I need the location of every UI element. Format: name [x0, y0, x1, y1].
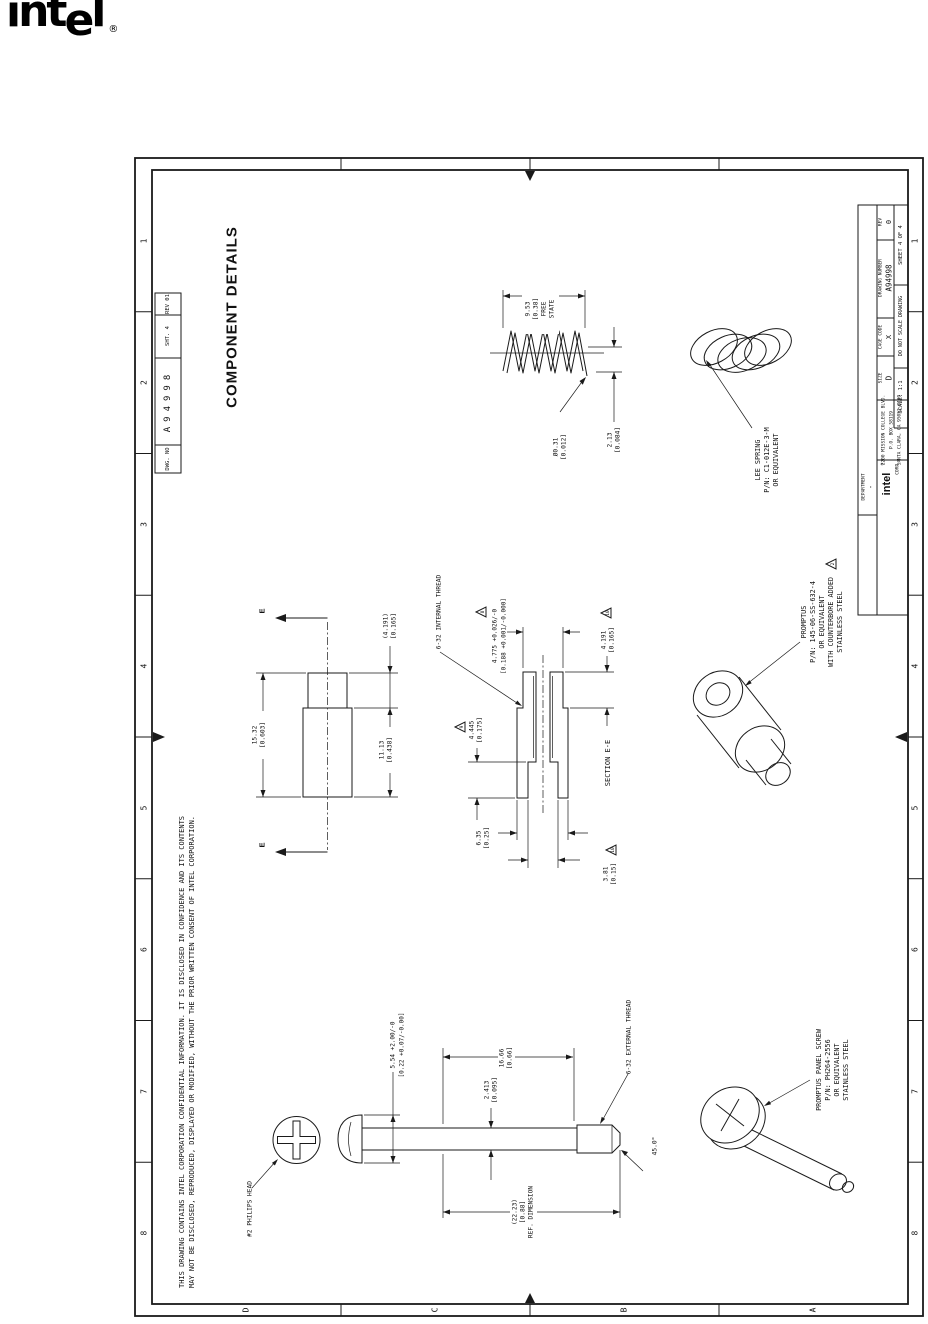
screw-callout-line1: PROMPTUS PANEL SCREW [815, 1028, 823, 1111]
flag-note-boss-len: 10 [601, 608, 611, 618]
spring-callout-line1: LEE SPRING [754, 440, 762, 481]
screw-thread-len-in: [0.66] [507, 1047, 514, 1069]
screw-head-view: #2 PHILIPS HEAD [247, 1117, 321, 1237]
confidentiality-line-1: THIS DRAWING CONTAINS INTEL CORPORATION … [178, 816, 186, 1288]
zone-number-left-8: 8 [140, 1231, 149, 1236]
spring-free-length-in: [0.38] [533, 298, 540, 320]
flag-note-press-dia-number: 8 [480, 610, 486, 613]
standoff-cbore-dia-mm: 3.81 [603, 866, 610, 881]
zone-number-right-1: 1 [911, 238, 920, 243]
spring-free-length-mm: 9.53 [525, 301, 532, 316]
standoff-boss-len-in: [0.165] [609, 627, 616, 653]
section-cut-label-top: E [258, 608, 267, 613]
flag-note-cbore-depth: 9 [455, 722, 465, 732]
zone-number-left-3: 3 [140, 522, 149, 527]
zone-number-right-5: 5 [911, 805, 920, 810]
tb-cage-label: CAGE CODE [878, 325, 884, 350]
spring-callout-line3: OR EQUIVALENT [772, 433, 780, 486]
standoff-body-in: [0.438] [387, 737, 394, 763]
standoff-internal-thread-callout: 6-32 INTERNAL THREAD [436, 574, 443, 649]
section-label: SECTION E-E [604, 740, 612, 786]
tb-sheet: SHEET 4 OF 4 [898, 224, 904, 264]
screw-overall-ref: REF. DIMENSION [528, 1186, 535, 1238]
zone-letter-c: C [431, 1307, 440, 1312]
tb-rev-value: 0 [885, 220, 893, 224]
flag-note-cbore-dia-number: 10 [610, 847, 616, 853]
tb-no-scale: DO NOT SCALE DRAWING [898, 296, 904, 356]
zone-number-left-6: 6 [140, 947, 149, 952]
title-block: SHEET 4 OF 4 DO NOT SCALE DRAWING SCALE:… [858, 205, 908, 615]
tb-company: CORP. [895, 461, 901, 475]
flag-note-press-dia: 8 [476, 607, 486, 617]
section-cut-label-bottom: E [258, 842, 267, 847]
tb-rev-label: REV [878, 218, 884, 226]
zone-labels: 1 2 3 4 5 6 7 8 1 2 3 4 5 6 7 8 D C B A [140, 238, 920, 1312]
flag-note-callout: 2 [826, 559, 836, 569]
standoff-callout-line3: OR EQUIVALENT [818, 595, 826, 648]
zone-number-right-8: 8 [911, 1231, 920, 1236]
header-rev: REV 01 [165, 294, 171, 314]
zone-number-left-4: 4 [140, 664, 149, 669]
standoff-press-dia-mm: 4.775 +0.026/-0 [492, 609, 499, 664]
spring-isometric-view: LEE SPRING P/N: C1-012E-3-M OR EQUIVALEN… [684, 321, 797, 493]
screw-shank-dia-in: [0.095] [492, 1077, 499, 1103]
standoff-body-dia-in: [0.25] [484, 827, 491, 849]
standoff-body-dia-mm: 6.35 [476, 830, 483, 845]
screw-side-view: 5.54 +2.00/-0 [0.22 +0.07/-0.00] 2.413 [… [338, 999, 659, 1241]
standoff-body-mm: 11.13 [379, 740, 386, 759]
spring-wire-dia-mm: Ø0.31 [552, 437, 560, 456]
spring-free-state-2: STATE [549, 299, 556, 318]
header-dwg-no: A94998 [163, 370, 173, 433]
tb-address-line3: SANTA CLARA, CA 95052-8119 [897, 394, 903, 465]
standoff-boss-ref-in: [0.165] [391, 613, 398, 639]
phillips-cross-icon [278, 1121, 316, 1159]
zone-number-left-5: 5 [140, 805, 149, 810]
header-strip: REV 01 SHT. 4 A94998 DWG. NO [155, 293, 181, 473]
screw-chamfer-angle: 45.0° [651, 1137, 659, 1156]
spring-pitch-mm: 2.13 [607, 432, 614, 447]
screw-ext-thread-callout: 6-32 EXTERNAL THREAD [626, 999, 633, 1074]
zone-number-right-2: 2 [911, 380, 920, 385]
screw-head-height-in: [0.22 +0.07/-0.00] [399, 1012, 406, 1077]
standoff-boss-len-mm: 4.191 [601, 630, 608, 649]
zone-number-right-4: 4 [911, 664, 920, 669]
tb-department-value: - [867, 485, 875, 489]
screw-overall-mm: (22.23) [512, 1199, 519, 1225]
screw-head-height-mm: 5.54 +2.00/-0 [390, 1021, 397, 1068]
standoff-callout-line2: P/N: 145-06-SS-632-4 [809, 581, 817, 663]
drawing-sheet: 1 2 3 4 5 6 7 8 1 2 3 4 5 6 7 8 D C B A [0, 0, 928, 1324]
drawing-page: intel® [0, 0, 928, 1324]
header-sheet: SHT. 4 [165, 325, 171, 346]
tb-cage-value: X [885, 334, 893, 339]
flag-note-cbore-dia: 10 [606, 845, 616, 855]
standoff-section-view: 6-32 INTERNAL THREAD 8 4.775 +0.026/-0 [… [436, 574, 618, 885]
zone-number-left-7: 7 [140, 1089, 149, 1094]
screw-head-callout: #2 PHILIPS HEAD [247, 1181, 254, 1237]
zone-letter-a: A [809, 1307, 818, 1312]
tb-intel-logo: intel [881, 473, 893, 496]
standoff-overall-mm: 15.32 [252, 725, 259, 744]
zone-number-right-3: 3 [911, 522, 920, 527]
standoff-callout-line1: PROMPTUS [800, 606, 808, 639]
standoff-overall-in: [0.603] [260, 722, 267, 748]
tb-dwg-label: DRAWING NUMBER [878, 259, 884, 297]
tb-department-label: DEPARTMENT [861, 473, 867, 500]
page-title: COMPONENT DETAILS [224, 226, 241, 408]
tb-address-line2: P.O. BOX 58119 [889, 411, 895, 449]
header-dwg-no-label: DWG. NO [165, 447, 171, 470]
zone-letter-b: B [620, 1307, 629, 1312]
confidentiality-line-2: MAY NOT BE DISCLOSED, REPRODUCED, DISPLA… [188, 816, 196, 1288]
tb-size-value: D [885, 375, 894, 380]
flag-note-cbore-depth-number: 9 [459, 725, 465, 728]
screw-overall-in: [0.88] [520, 1201, 527, 1223]
tb-size-label: SIZE [878, 372, 884, 383]
standoff-callout-line5: STAINLESS STEEL [836, 591, 844, 652]
screw-shank-dia-mm: 2.413 [484, 1080, 491, 1099]
spring-free-state-1: FREE [541, 301, 548, 316]
standoff-press-dia-in: [0.188 +0.001/-0.000] [501, 598, 508, 674]
screw-callout-line4: STAINLESS STEEL [842, 1039, 850, 1100]
screw-callout-line2: P/N: PH264-2556 [824, 1039, 832, 1100]
tb-address-line1: 2200 MISSION COLLEGE BLVD. [881, 395, 887, 465]
standoff-boss-ref-mm: (4.191) [383, 613, 390, 639]
screw-thread-len-mm: 16.66 [499, 1048, 506, 1067]
zone-number-left-1: 1 [140, 238, 149, 243]
screw-callout-line3: OR EQUIVALENT [833, 1043, 841, 1096]
zone-number-right-6: 6 [911, 947, 920, 952]
zone-number-right-7: 7 [911, 1089, 920, 1094]
spring-side-view: 9.53 [0.38] FREE STATE 2.13 [0.084] Ø0.3… [490, 284, 622, 460]
flag-note-boss-len-number: 10 [605, 610, 611, 616]
flag-note-callout-number: 2 [830, 562, 836, 565]
confidentiality-note: THIS DRAWING CONTAINS INTEL CORPORATION … [178, 816, 196, 1288]
standoff-callout-line4: WITH COUNTERBORE ADDED [827, 577, 835, 667]
standoff-isometric-view: PROMPTUS P/N: 145-06-SS-632-4 OR EQUIVAL… [684, 559, 844, 790]
standoff-cbore-depth-in: [0.175] [477, 717, 484, 743]
standoff-side-view: E E 15.32 [0.603] (4.191) [0.165] 11.1 [250, 608, 398, 856]
spring-wire-dia-in: [0.012] [561, 434, 568, 460]
screw-isometric-view: PROMPTUS PANEL SCREW P/N: PH264-2556 OR … [690, 1028, 856, 1194]
standoff-cbore-dia-in: [0.15] [611, 863, 618, 885]
zone-number-left-2: 2 [140, 380, 149, 385]
zone-letter-d: D [242, 1307, 251, 1312]
spring-callout-line2: P/N: C1-012E-3-M [763, 427, 771, 492]
spring-pitch-in: [0.084] [615, 427, 622, 453]
standoff-cbore-depth-mm: 4.445 [469, 720, 476, 739]
tb-dwg-value: A94998 [885, 264, 894, 292]
